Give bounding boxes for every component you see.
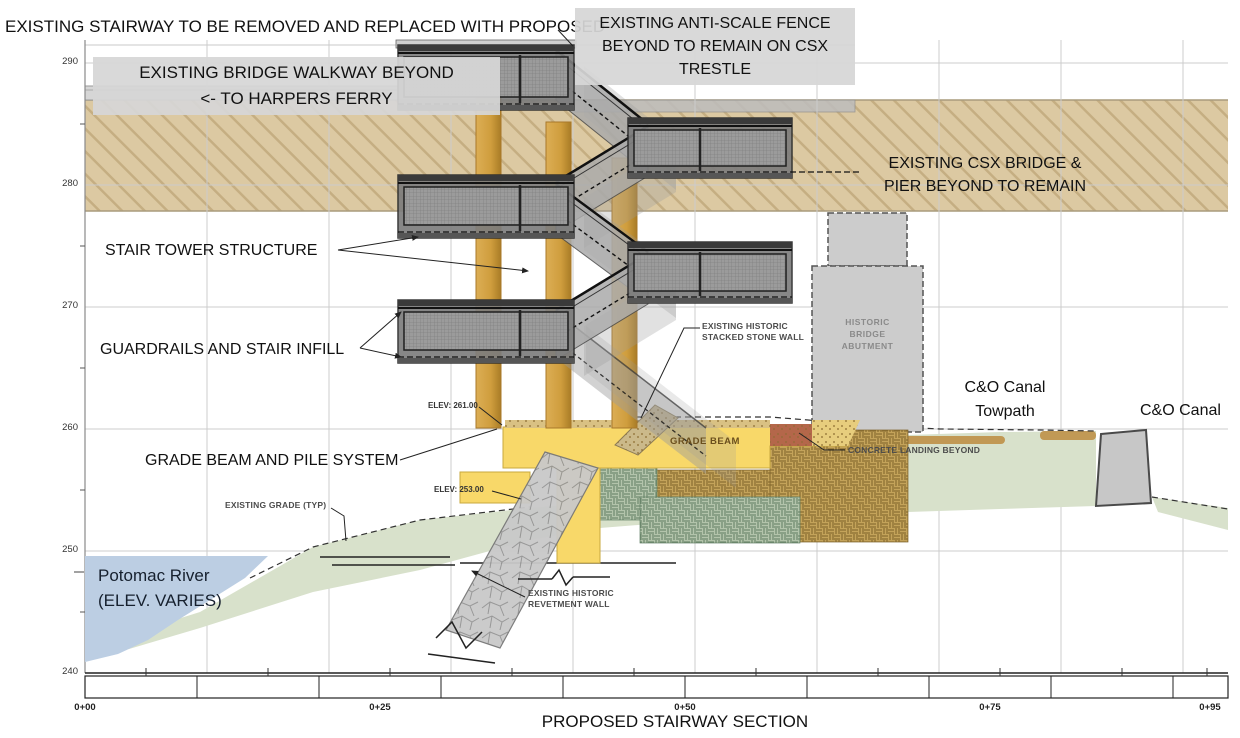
- elev-tick-250: 250: [40, 544, 78, 556]
- label-line: EXISTING ANTI-SCALE FENCE: [575, 12, 855, 35]
- label-revetment-wall: EXISTING HISTORIC REVETMENT WALL: [528, 588, 614, 610]
- label-line: REVETMENT WALL: [528, 599, 614, 610]
- elevation-axis: [80, 40, 85, 673]
- label-line: Towpath: [940, 400, 1070, 424]
- label-stair-tower: STAIR TOWER STRUCTURE: [105, 241, 317, 261]
- label-anti-scale-fence: EXISTING ANTI-SCALE FENCE BEYOND TO REMA…: [575, 8, 855, 85]
- drawing-title: PROPOSED STAIRWAY SECTION: [470, 711, 880, 732]
- elev-tick-270: 270: [40, 300, 78, 312]
- label-existing-stairway-removed: EXISTING STAIRWAY TO BE REMOVED AND REPL…: [5, 16, 605, 37]
- label-bridge-walkway: EXISTING BRIDGE WALKWAY BEYOND <- TO HAR…: [93, 57, 500, 115]
- label-line: EXISTING HISTORIC: [528, 588, 614, 599]
- label-grade-beam-pile-system: GRADE BEAM AND PILE SYSTEM: [145, 451, 398, 471]
- landing-R2: [628, 242, 792, 303]
- canal-wall: [1096, 430, 1151, 506]
- label-elev-261: ELEV: 261.00: [428, 401, 478, 411]
- label-historic-abutment: HISTORIC BRIDGE ABUTMENT: [812, 316, 923, 352]
- canal-bed-slope: [1152, 497, 1228, 530]
- landing-L2: [398, 175, 574, 238]
- station-bar: [85, 668, 1228, 698]
- label-stacked-stone-wall: EXISTING HISTORIC STACKED STONE WALL: [702, 321, 804, 343]
- label-line: EXISTING BRIDGE WALKWAY BEYOND: [93, 60, 500, 86]
- label-elev-253: ELEV: 253.00: [434, 485, 484, 495]
- label-line: Potomac River: [98, 563, 222, 588]
- label-line: PIER BEYOND TO REMAIN: [850, 175, 1120, 198]
- label-concrete-landing: CONCRETE LANDING BEYOND: [848, 445, 980, 456]
- elev-tick-290: 290: [40, 56, 78, 68]
- label-line: BEYOND TO REMAIN ON CSX: [575, 35, 855, 58]
- label-line: ABUTMENT: [812, 340, 923, 352]
- label-line: (ELEV. VARIES): [98, 588, 222, 613]
- elev-tick-240: 240: [40, 666, 78, 678]
- label-guardrails: GUARDRAILS AND STAIR INFILL: [100, 340, 344, 360]
- label-line: STACKED STONE WALL: [702, 332, 804, 343]
- landing-L3: [398, 300, 574, 363]
- station-0-75: 0+75: [965, 702, 1015, 714]
- label-existing-grade: EXISTING GRADE (TYP): [225, 500, 326, 511]
- station-0-95: 0+95: [1185, 702, 1235, 714]
- station-0-00: 0+00: [60, 702, 110, 714]
- label-line: TRESTLE: [575, 58, 855, 81]
- label-csx-bridge: EXISTING CSX BRIDGE & PIER BEYOND TO REM…: [850, 152, 1120, 198]
- label-line: EXISTING HISTORIC: [702, 321, 804, 332]
- label-canal: C&O Canal: [1140, 401, 1221, 421]
- elev-tick-260: 260: [40, 422, 78, 434]
- label-line: BRIDGE: [812, 328, 923, 340]
- label-line: C&O Canal: [940, 376, 1070, 400]
- label-line: EXISTING CSX BRIDGE &: [850, 152, 1120, 175]
- label-line: HISTORIC: [812, 316, 923, 328]
- elev-tick-280: 280: [40, 178, 78, 190]
- station-0-25: 0+25: [355, 702, 405, 714]
- label-grade-beam: GRADE BEAM: [660, 436, 750, 448]
- label-line: <- TO HARPERS FERRY: [93, 86, 500, 112]
- label-potomac-river: Potomac River (ELEV. VARIES): [98, 563, 222, 613]
- proposed-stairway-section-drawing: EXISTING STAIRWAY TO BE REMOVED AND REPL…: [0, 0, 1240, 738]
- label-towpath: C&O Canal Towpath: [940, 376, 1070, 424]
